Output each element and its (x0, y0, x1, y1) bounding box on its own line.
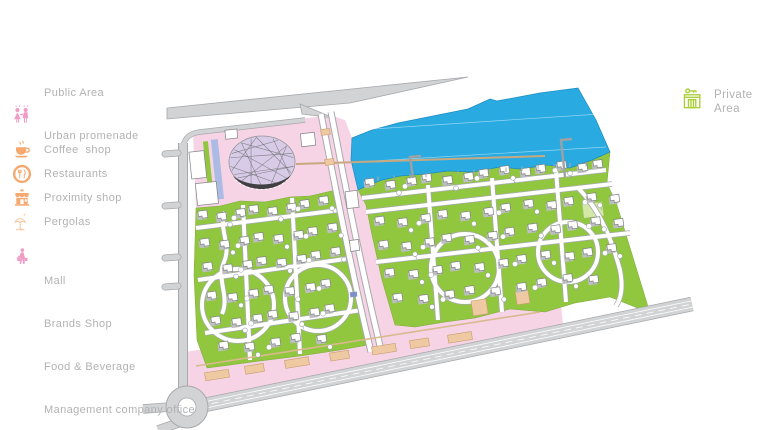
private-area-text: Private Area (714, 88, 768, 116)
restaurants-icon (9, 163, 35, 185)
legend-label: Public Area (44, 86, 139, 101)
site-master-plan: Public Area Urban promenade Coffee shop (0, 0, 768, 430)
legend-label: Food & Beverage (44, 360, 195, 375)
legend-item-mall: Mall Brands Shop Food & Beverage Managem… (9, 246, 199, 430)
legend-item-pergolas: Pergolas (9, 211, 199, 233)
legend-label: Mall (44, 274, 195, 289)
legend-label: Coffee shop (44, 143, 111, 157)
private-area-label: Private Area (680, 86, 768, 117)
mall-icon (9, 246, 35, 268)
legend-label: Proximity shop (44, 191, 122, 205)
legend-panel: Public Area Urban promenade Coffee shop (9, 98, 199, 430)
legend-label: Urban promenade (44, 129, 139, 144)
legend-item-proximity-shop: Proximity shop (9, 187, 199, 209)
legend-label: Management company office (44, 403, 195, 418)
legend-label: Restaurants (44, 167, 108, 181)
proximity-shop-icon (9, 187, 35, 209)
gate-key-icon (680, 86, 705, 117)
legend-label: Pergolas (44, 215, 91, 229)
coffee-shop-icon (9, 139, 35, 161)
legend-item-public-area: Public Area Urban promenade (9, 98, 199, 132)
public-area-icon (9, 104, 35, 126)
pergolas-icon (9, 211, 35, 233)
legend-label: Brands Shop (44, 317, 195, 332)
legend-item-restaurants: Restaurants (9, 163, 199, 185)
